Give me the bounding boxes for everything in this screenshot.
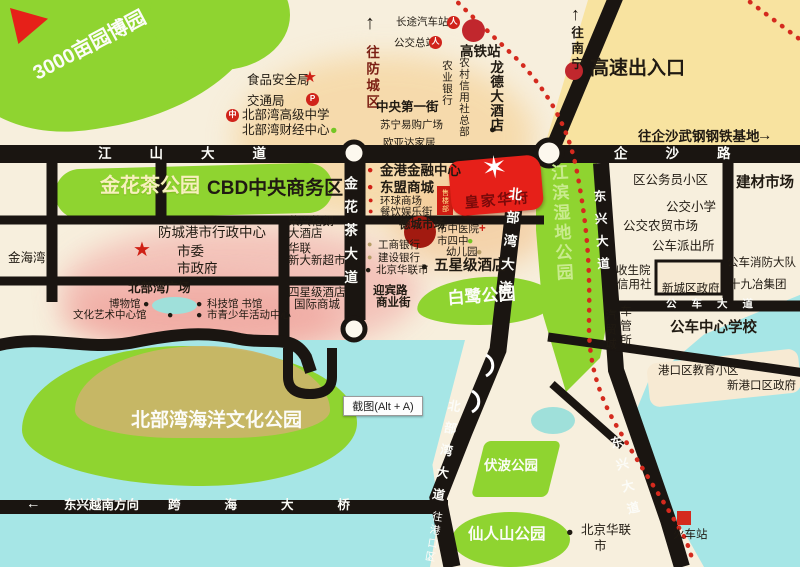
five-star-dot-icon: ● [421, 261, 428, 273]
long-distance-bus-station: 长途汽车站 [396, 17, 449, 28]
shijiuye-group: 十九冶集团 [729, 279, 787, 291]
gongjiao-primary-school: 公交小学 [666, 201, 716, 214]
road-qisha-label: 企沙路 [614, 147, 769, 161]
cbd-label: CBD中央商务区 [207, 179, 343, 199]
roundabout-expressway [536, 140, 562, 166]
school-icon: 中 [226, 109, 239, 122]
fubo-park-label: 伏波公园 [484, 459, 538, 473]
road-jinhuacha-label: 金花茶大道 [342, 176, 356, 294]
youth-activity-center: 市青少年活动中心 [207, 310, 291, 321]
map-canvas: 售楼部 ✶ 皇家华府 3000亩园博园江山大道企沙路食品安全局★交通局P中北部湾… [0, 0, 800, 567]
kindergarten: 幼儿园 [446, 247, 478, 258]
auto-trade-city: 汽贸城 [604, 309, 616, 353]
gongjiao-farmers-market: 公交农贸市场 [623, 220, 698, 233]
roundabout-jinhuacha [343, 142, 365, 164]
city-admin-center: 防城港市行政中心 [158, 226, 266, 240]
credit-union: 信用社 [617, 279, 652, 291]
vehicle-admin-office: 车管所 [619, 305, 631, 349]
city-committee: 市委 [177, 245, 204, 259]
commercial-street: 商业街 [376, 297, 411, 309]
beibuwan-high-school: 北部湾高级中学 [242, 109, 330, 122]
longde-hotel: 龙德大酒店 [488, 60, 502, 133]
royal-mansion-banner: ✶ 皇家华府 [448, 154, 544, 217]
parking-icon: P [306, 93, 319, 106]
sales-office-label: 售楼部 [442, 189, 449, 213]
central-first-street: 中央第一街 [376, 101, 439, 114]
screenshot-tooltip[interactable]: 截图(Alt + A) [343, 396, 423, 416]
asean-mall: 东盟商城 [380, 181, 434, 195]
expressway-exit: 高速出入口 [590, 59, 685, 79]
dongxing-vietnam-direction: 东兴越南方向 [64, 499, 139, 512]
food-safety-bureau: 食品安全局 [247, 74, 310, 87]
screenshot-tooltip-text: 截图(Alt + A) [352, 398, 413, 414]
suning-plaza: 苏宁易购广场 [380, 120, 443, 131]
culture-dot-icon: ● [167, 310, 173, 321]
jinhaiwan: 金海湾 [8, 252, 46, 265]
food-street-bullet-icon: ● [368, 207, 373, 216]
rural-credit-union-hq: 农村信用社总部 [458, 57, 469, 138]
government-star-icon: ★ [133, 240, 151, 261]
bus-terminal-icon: 人 [429, 36, 442, 49]
new-gangkou-government: 新港口区政府 [727, 380, 796, 392]
gangkou-education-community: 港口区教育小区 [658, 365, 739, 377]
finance-center-dot-icon: ● [330, 124, 338, 137]
xindaxin-supermarket: 新大新超市 [288, 255, 346, 267]
bus-station-icon: 人 [447, 16, 460, 29]
star-icon: ✶ [480, 151, 509, 184]
to-nanning: 往南宁 [569, 26, 582, 73]
building-materials-market: 建材市场 [736, 176, 794, 191]
hospital-cross-icon: + [479, 223, 486, 235]
agricultural-bank: 农业银行 [441, 60, 452, 106]
culture-art-center: 文化艺术中心馆 [73, 310, 147, 321]
roundabout-south [343, 318, 365, 340]
city-government: 市政府 [177, 262, 218, 276]
road-gongche-label: 公车大道 [666, 299, 768, 310]
icbc-dot-icon: ● [367, 240, 372, 249]
rongxing-hotel-line1: 荣兴格朗 [288, 216, 334, 228]
fire-brigade: 公车消防大队 [727, 257, 796, 269]
beijing-hualian-south-2: 市 [594, 540, 607, 553]
yingbin-road: 迎宾路 [373, 285, 408, 297]
hualian-south-dot-icon: ● [566, 526, 574, 539]
train-station-marker [677, 511, 691, 525]
youth-dot-icon: ● [196, 310, 202, 321]
to-gangkou-arrow-icon: ↓ [426, 549, 433, 563]
train-station: 火车站 [673, 529, 708, 541]
global-bullet-icon: ● [368, 196, 373, 205]
gongche-central-school: 公车中心学校 [670, 321, 757, 336]
cross-sea-bridge-label: 跨海大桥 [168, 499, 394, 512]
beijing-hualian-south: 北京华联 [581, 524, 631, 537]
five-star-hotel: 五星级酒店 [434, 259, 507, 274]
ouyada-home: 欧亚达家居 [383, 138, 436, 149]
longde-hotel-dot-icon: ● [489, 124, 496, 136]
gongche-police-station: 公车派出所 [652, 240, 715, 253]
new-district-government: 新城区政府 [662, 283, 720, 295]
beibuwan-finance-center: 北部湾财经中心 [242, 124, 330, 137]
food-street: 餐饮娱乐街 [380, 207, 433, 218]
hualian-store: 华联 [288, 243, 311, 255]
railway-dotted-northeast [742, 0, 800, 44]
jingang-finance-center: 金港金融中心 [380, 164, 461, 178]
rongxing-hotel-line2: 大酒店 [288, 228, 323, 240]
high-speed-rail-dot-icon [462, 19, 485, 42]
jinhuacha-park-label: 金花茶公园 [100, 176, 200, 197]
to-nanning-arrow-icon: ↑ [571, 5, 580, 24]
to-qisha-arrow-icon: → [757, 128, 773, 144]
health-center: 收生院 [616, 265, 651, 277]
intl-mall: 国际商城 [294, 299, 340, 311]
icbc-bank: 工商银行 [378, 240, 420, 251]
ocean-culture-park-label: 北部湾海洋文化公园 [131, 411, 302, 431]
four-star-hotel: 四星级酒店 [288, 287, 346, 299]
hualian-dot-icon: ● [365, 265, 371, 276]
civil-servant-community: 区公务员小区 [633, 174, 708, 187]
beibuwan-square: 北部湾广场 [128, 282, 191, 295]
ccb-bank: 建设银行 [378, 253, 420, 264]
road-jiangshan-label: 江山大道 [98, 147, 304, 161]
asean-bullet-icon: ● [367, 182, 373, 193]
city-tcm-hospital: 市中医院 [437, 224, 479, 235]
ccb-dot-icon: ● [367, 253, 372, 262]
xianrenshan-park-label: 仙人山公园 [468, 527, 546, 543]
food-safety-star-icon: ★ [303, 70, 317, 86]
transport-bureau: 交通局 [247, 95, 285, 108]
to-fangcheng-arrow-icon: ↑ [365, 13, 375, 34]
jingang-bullet-icon: ● [367, 165, 373, 176]
kindergarten-dot-icon: ● [476, 247, 482, 258]
road-coast [0, 334, 311, 372]
to-qisha-steel-base: 往企沙武钢钢铁基地 [638, 130, 760, 144]
bridge-arrow-icon: ← [26, 497, 41, 512]
